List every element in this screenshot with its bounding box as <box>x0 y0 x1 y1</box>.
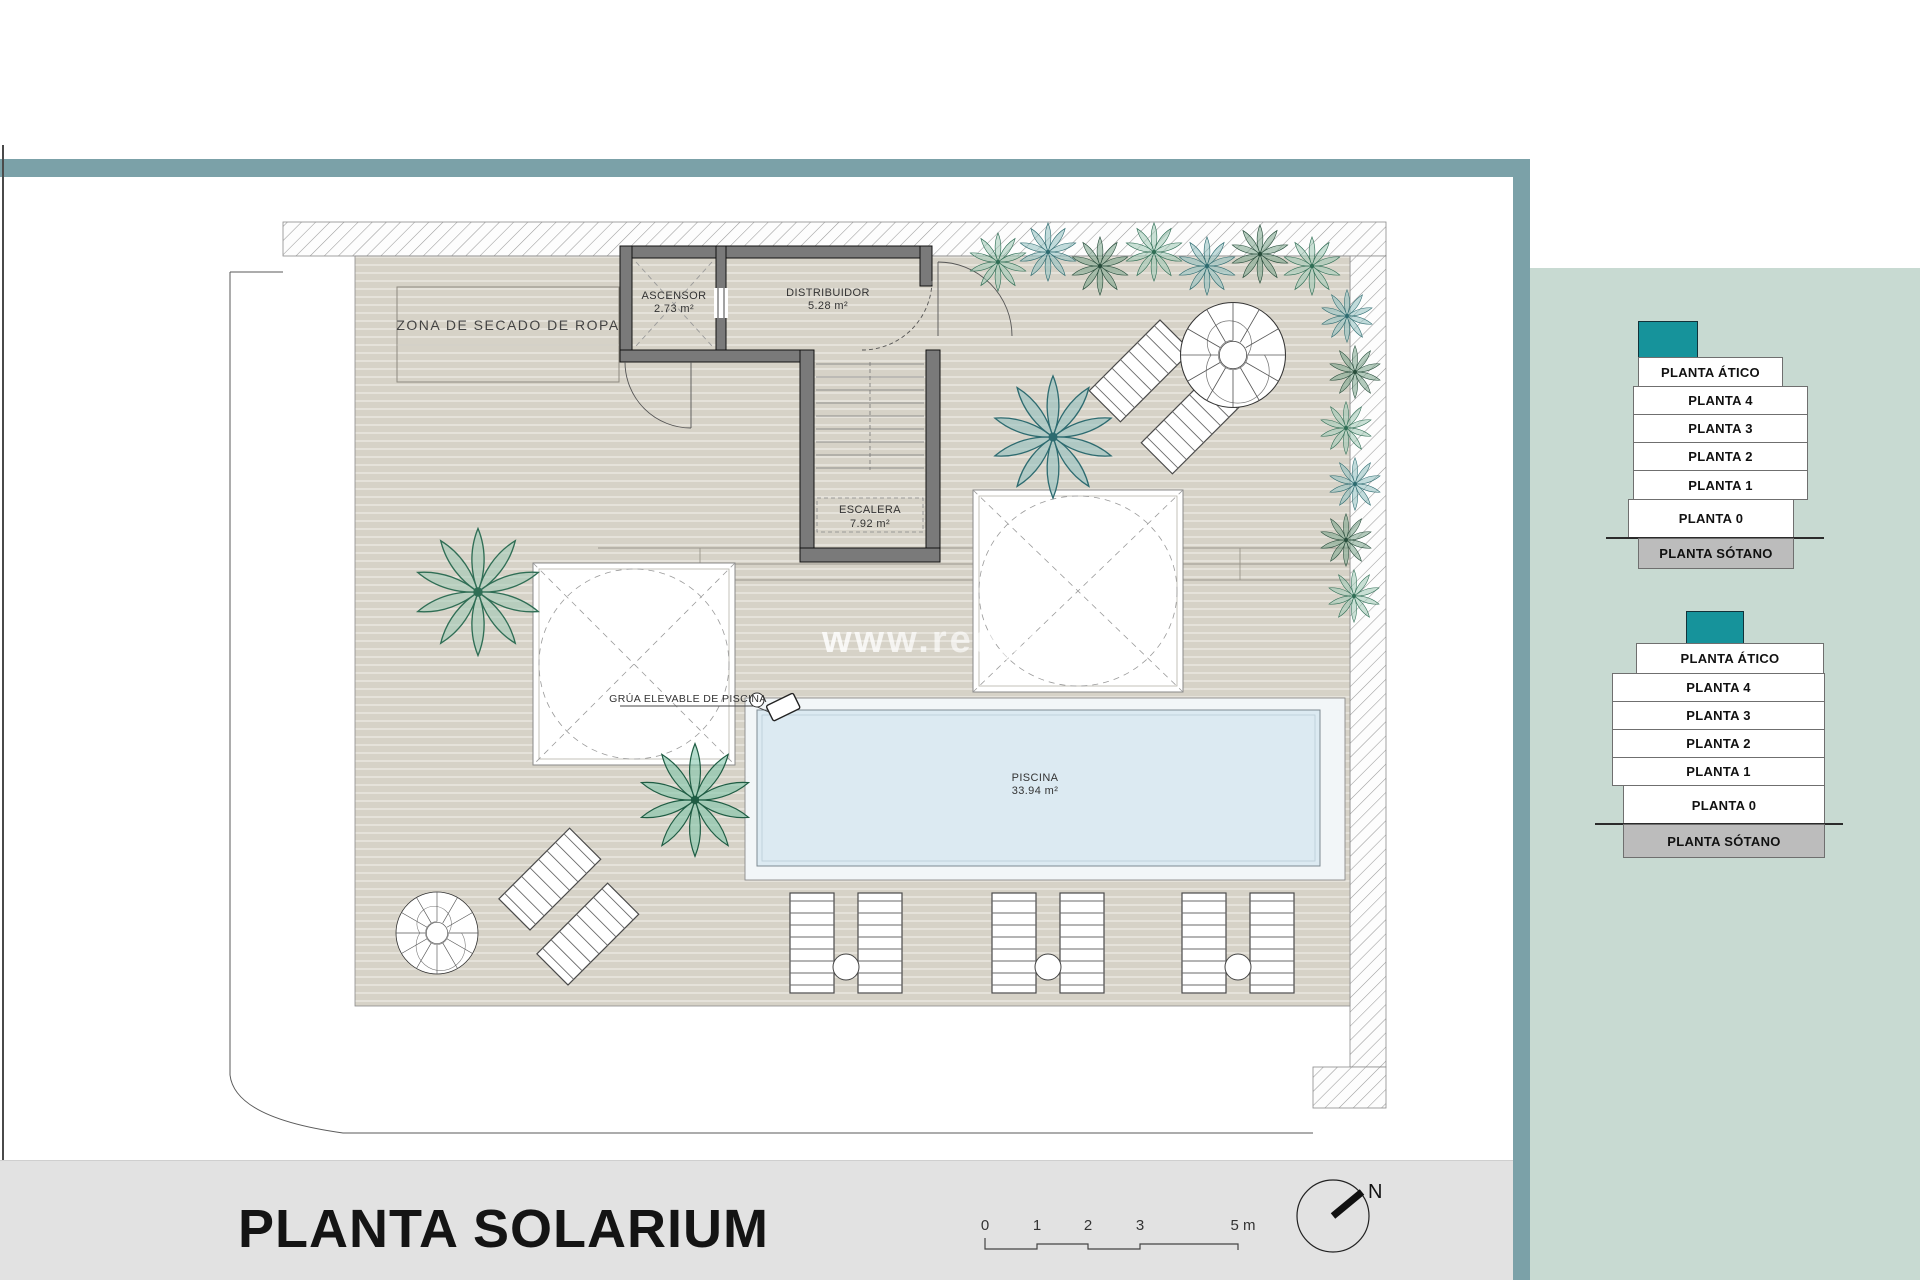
floor-row-sotano[interactable]: PLANTA SÓTANO <box>1623 824 1825 858</box>
stair-label: ESCALERA <box>839 504 901 516</box>
floor-plan-drawing: ZONA DE SECADO DE ROPA PISCINA 33.94 m² <box>0 0 1529 1280</box>
floor-row-1[interactable]: PLANTA 1 <box>1633 470 1808 500</box>
stair-area-label: 7.92 m² <box>850 518 890 530</box>
skylight-right <box>973 490 1183 692</box>
page-title: PLANTA SOLARIUM <box>238 1198 769 1260</box>
watermark: www.redpalm <box>821 619 1101 661</box>
floor-row-1[interactable]: PLANTA 1 <box>1612 757 1825 786</box>
scale-bar: 0 1 2 3 5 m <box>981 1217 1256 1250</box>
drying-zone-label: ZONA DE SECADO DE ROPA <box>396 317 619 333</box>
scale-tick: 5 m <box>1230 1217 1255 1234</box>
floor-row-atico[interactable]: PLANTA ÁTICO <box>1638 357 1783 387</box>
floor-row-3[interactable]: PLANTA 3 <box>1612 701 1825 730</box>
spiral-parasol <box>396 892 478 974</box>
spiral-parasol <box>1181 303 1286 408</box>
floor-row-4[interactable]: PLANTA 4 <box>1612 673 1825 702</box>
scale-tick: 1 <box>1033 1217 1041 1234</box>
floor-row-2[interactable]: PLANTA 2 <box>1633 442 1808 471</box>
roof-highlight-square <box>1686 611 1744 644</box>
side-table <box>1225 954 1251 980</box>
skylight-left <box>533 563 735 765</box>
elevator-area-label: 2.73 m² <box>654 303 694 315</box>
floor-row-4[interactable]: PLANTA 4 <box>1633 386 1808 415</box>
floor-row-atico[interactable]: PLANTA ÁTICO <box>1636 643 1824 674</box>
side-table <box>1035 954 1061 980</box>
pool-area-label: 33.94 m² <box>1012 785 1059 797</box>
north-label: N <box>1368 1181 1382 1203</box>
roof-highlight-square <box>1638 321 1698 358</box>
floor-row-0[interactable]: PLANTA 0 <box>1623 785 1825 825</box>
scale-tick: 3 <box>1136 1217 1144 1234</box>
pool: PISCINA 33.94 m² <box>745 698 1345 880</box>
north-arrow: N <box>1297 1180 1382 1252</box>
side-table <box>833 954 859 980</box>
pool-label: PISCINA <box>1012 772 1059 784</box>
floor-row-sotano[interactable]: PLANTA SÓTANO <box>1638 538 1794 569</box>
floor-row-2[interactable]: PLANTA 2 <box>1612 729 1825 758</box>
scale-tick: 2 <box>1084 1217 1092 1234</box>
scale-tick: 0 <box>981 1217 989 1234</box>
hall-area-label: 5.28 m² <box>808 300 848 312</box>
hall-label: DISTRIBUIDOR <box>786 287 870 299</box>
elevator-label: ASCENSOR <box>642 290 707 302</box>
floor-row-0[interactable]: PLANTA 0 <box>1628 499 1794 538</box>
pool-hoist-label: GRÚA ELEVABLE DE PISCINA <box>609 692 767 705</box>
page: ZONA DE SECADO DE ROPA PISCINA 33.94 m² <box>0 0 1920 1280</box>
elevator-door <box>714 288 728 318</box>
floor-row-3[interactable]: PLANTA 3 <box>1633 414 1808 443</box>
